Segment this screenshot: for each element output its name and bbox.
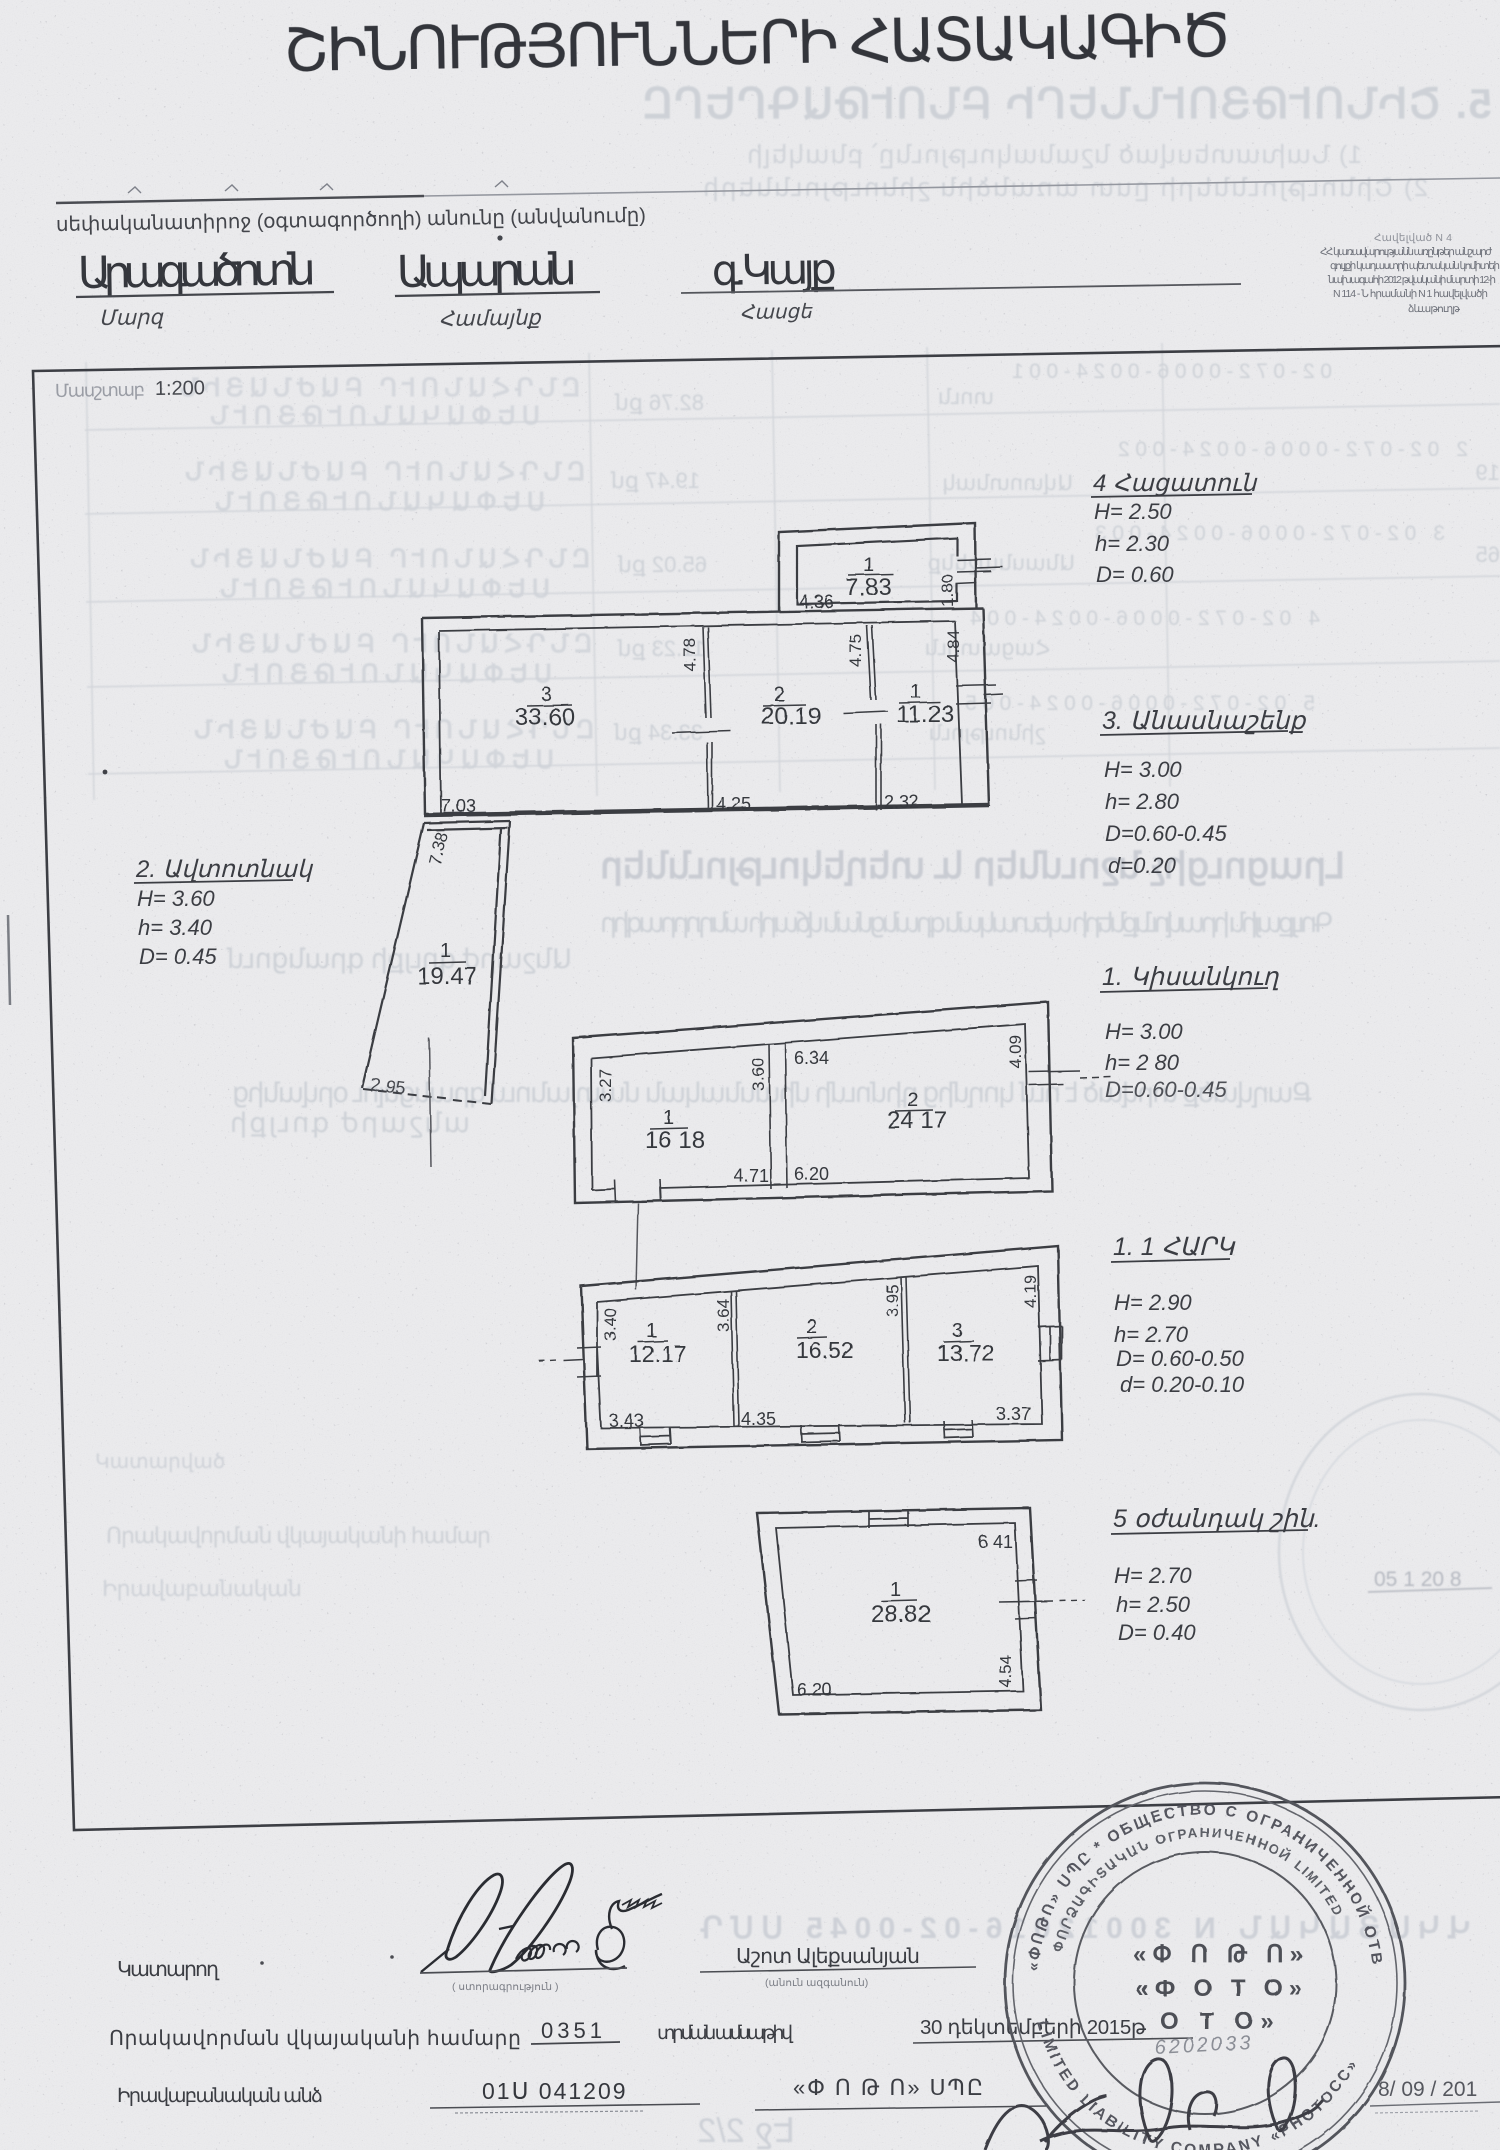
svg-text:3.27: 3.27 [596,1069,615,1102]
svg-text:4.09: 4.09 [1006,1035,1025,1068]
svg-text:1:200: 1:200 [155,377,205,400]
svg-text:ՍԵՓԱԿԱՆՈՒԹՅՈՒՆ: ՍԵՓԱԿԱՆՈՒԹՅՈՒՆ [222,660,552,688]
svg-text:ՍԵՓԱԿԱՆՈՒԹՅՈՒՆ: ՍԵՓԱԿԱՆՈՒԹՅՈՒՆ [224,746,554,774]
svg-text:«Փ Ո Թ Ո»: «Փ Ո Թ Ո» [1133,1941,1309,1968]
svg-text:28.82: 28.82 [871,1601,931,1628]
svg-text:ԸՆԴՀԱՆՈՒՐ ԲԱԺՆԱՅԻՆ: ԸՆԴՀԱՆՈՒՐ ԲԱԺՆԱՅԻՆ [192,630,592,658]
svg-text:1) Նախատեսված նշանակությունը՝: 1) Նախատեսված նշանակությունը՝ բնակելի [747,141,1362,169]
svg-text:1: 1 [910,681,921,703]
svg-text:12.17: 12.17 [629,1341,687,1367]
svg-text:d= 0.20-0.10: d= 0.20-0.10 [1120,1372,1245,1397]
svg-text:Արագածոտն: Արագածոտն [77,245,316,298]
svg-text:6 41: 6 41 [978,1532,1013,1552]
svg-text:3: 3 [952,1320,963,1342]
svg-text:30 դեկտեմբերի 2015թ: 30 դեկտեմբերի 2015թ [920,2016,1147,2039]
svg-text:2) Շինությունների ըստ առանձին: 2) Շինությունների ըստ առանձին շինություն… [703,174,1428,202]
svg-text:1: 1 [663,1107,674,1129]
svg-text:ԸՆԴՀԱՆՈՒՐ ԲԱԺՆԱՅԻՆ: ԸՆԴՀԱՆՈՒՐ ԲԱԺՆԱՅԻՆ [180,374,580,402]
svg-text:H= 3.60: H= 3.60 [137,886,215,911]
svg-text:h= 2 80: h= 2 80 [1105,1050,1180,1075]
svg-text:h= 3.40: h= 3.40 [138,915,213,940]
svg-text:11.23: 11.23 [896,701,954,728]
svg-text:65: 65 [1476,542,1500,567]
svg-text:4 02-072-0006-0024-004: 4 02-072-0006-0024-004 [970,607,1320,630]
svg-text:նախագահի 2012 թվականի մարտի 12: նախագահի 2012 թվականի մարտի 12-ի [1327,274,1496,286]
svg-text:Կատարված: Կատարված [95,1451,225,1473]
svg-text:4.78: 4.78 [680,638,699,671]
svg-text:5 օժանդակ շին.: 5 օժանդակ շին. [1113,1505,1321,1533]
svg-text:4.54: 4.54 [996,1655,1015,1688]
svg-text:D=0.60-0.45: D=0.60-0.45 [1105,1077,1227,1102]
svg-text:4.71: 4.71 [734,1166,769,1186]
svg-text:1: 1 [440,940,451,962]
svg-text:2.95: 2.95 [370,1074,407,1098]
svg-text:13.72: 13.72 [937,1340,995,1366]
svg-text:1. Կիսանկուղ: 1. Կիսանկուղ [1102,963,1280,991]
svg-text:3.95: 3.95 [883,1284,902,1317]
svg-text:H= 3.00: H= 3.00 [1105,1019,1183,1044]
svg-text:տրման ամսաթիվ: տրման ամսաթիվ [657,2023,794,2044]
svg-text:Անշարժ գույքի գրանցում: Անշարժ գույքի գրանցում [226,944,572,974]
svg-text:ԸՆԴՀԱՆՈՒՐ ԲԱԺՆԱՅԻՆ: ԸՆԴՀԱՆՈՒՐ ԲԱԺՆԱՅԻՆ [190,545,590,573]
svg-text:4 Հացատուն: 4 Հացատուն [1093,470,1258,497]
svg-text:2.32: 2.32 [884,792,919,812]
svg-text:2 02-072-0006-0024-002: 2 02-072-0006-0024-002 [1118,438,1468,461]
svg-text:05 1 20 8: 05 1 20 8 [1374,1568,1462,1591]
svg-text:7.03: 7.03 [441,796,476,816]
svg-text:1: 1 [863,554,874,576]
svg-text:H= 3.00: H= 3.00 [1104,757,1182,782]
svg-text:16 18: 16 18 [645,1127,705,1154]
svg-text:Հավելված N 4: Հավելված N 4 [1374,232,1452,244]
svg-text:Իրավաբանական անձ: Իրավաբանական անձ [117,2085,323,2107]
svg-text:Հասցե: Հասցե [740,301,813,324]
svg-text:3.37: 3.37 [996,1404,1031,1424]
svg-text:3.43: 3.43 [609,1411,644,1431]
svg-text:Գույքային իրավունքների պետական: Գույքային իրավունքների պետական գրանցման … [600,908,1333,938]
svg-text:19.47 քմ: 19.47 քմ [610,468,700,493]
svg-text:01Ս 041209: 01Ս 041209 [482,2078,628,2104]
svg-text:82.76 քմ: 82.76 քմ [614,390,704,415]
svg-text:«Ф О Т О»: «Ф О Т О» [1135,1975,1308,2002]
svg-text:Կատարող: Կատարող [117,1958,220,1981]
svg-text:20.19: 20.19 [761,703,821,730]
svg-text:4.75: 4.75 [846,634,865,667]
svg-text:8/ 09 / 201: 8/ 09 / 201 [1378,2078,1477,2101]
svg-text:Ապարան: Ապարան [396,245,577,297]
svg-text:1: 1 [646,1320,657,1342]
svg-text:1: 1 [890,1579,901,1601]
svg-text:h= 2.80: h= 2.80 [1105,789,1180,814]
svg-text:D= 0.60: D= 0.60 [1096,562,1174,587]
svg-text:1. 1 ՀԱՐԿ: 1. 1 ՀԱՐԿ [1113,1233,1236,1261]
svg-text:անշարժ գույքի: անշարժ գույքի [230,1108,470,1138]
svg-text:D= 0.60-0.50: D= 0.60-0.50 [1116,1346,1245,1371]
svg-text:Մարզ: Մարզ [99,306,165,330]
svg-text:ձևաթուղթ: ձևաթուղթ [1408,303,1461,315]
svg-text:0351: 0351 [541,2018,606,2043]
svg-text:4.84: 4.84 [944,630,963,663]
svg-text:H= 2.70: H= 2.70 [1114,1563,1192,1588]
svg-text:Որակավորման վկայականի համար: Որակավորման վկայականի համար [106,1523,491,1548]
svg-text:Մասշտաբ: Մասշտաբ [55,380,145,401]
svg-text:ՍԵՓԱԿԱՆՈՒԹՅՈՒՆ: ՍԵՓԱԿԱՆՈՒԹՅՈՒՆ [215,488,545,516]
svg-text:h= 2.70: h= 2.70 [1114,1322,1189,1347]
svg-text:ՍԵՓԱԿԱՆՈՒԹՅՈՒՆ: ՍԵՓԱԿԱՆՈՒԹՅՈՒՆ [220,575,550,603]
svg-text:H= 2.90: H= 2.90 [1114,1290,1192,1315]
svg-text:H= 2.50: H= 2.50 [1094,499,1172,524]
svg-text:19.47: 19.47 [417,963,477,990]
svg-text:d=0.20: d=0.20 [1108,853,1177,878]
svg-text:Ավտոտնակ: Ավտոտնակ [942,472,1073,495]
svg-text:Էջ 2/2: Էջ 2/2 [697,2112,795,2150]
svg-text:16.52: 16.52 [796,1337,854,1363]
svg-text:D= 0.45: D= 0.45 [139,944,217,969]
svg-text:7.83: 7.83 [845,574,892,601]
svg-text:Համայնք: Համայնք [439,306,542,331]
svg-text:6.20: 6.20 [797,1680,832,1700]
svg-text:(անուն ազգանուն): (անուն ազգանուն) [765,1977,868,1989]
svg-text:գ.Կայք: գ.Կայք [711,245,837,294]
svg-text:4.25: 4.25 [716,794,751,814]
svg-text:Լրացուցիչ նշումներ և տեղեկությ: Լրացուցիչ նշումներ և տեղեկություններ [600,845,1345,887]
svg-text:D= 0.40: D= 0.40 [1118,1620,1196,1645]
svg-text:6.20: 6.20 [794,1164,829,1184]
svg-text:ՀՀ կառավարությանն առընթեր անշա: ՀՀ կառավարությանն առընթեր անշարժ [1320,246,1493,258]
svg-text:Անասնաշենք: Անասնաշենք [928,552,1075,575]
svg-text:Իրավաբանական: Իրավաբանական [102,1576,302,1601]
svg-text:3: 3 [541,684,552,706]
svg-text:6.34: 6.34 [794,1048,829,1068]
svg-text:О Т О»: О Т О» [1160,2008,1281,2035]
svg-text:4.35: 4.35 [741,1409,776,1429]
svg-text:2: 2 [806,1316,817,1338]
svg-text:Աշոտ Ալեքսանյան: Աշոտ Ալեքսանյան [736,1945,920,1968]
svg-text:19: 19 [1476,460,1500,485]
svg-text:4.19: 4.19 [1021,1275,1040,1308]
svg-text:( ստորագրություն ): ( ստորագրություն ) [452,1981,559,1993]
svg-text:գույքի կադաստրի պետական կոմիտե: գույքի կադաստրի պետական կոմիտեի [1330,260,1500,272]
svg-text:3.64: 3.64 [714,1299,733,1332]
svg-text:h= 2.50: h= 2.50 [1116,1592,1191,1617]
svg-text:ԸՆԴՀԱՆՈՒՐ ԲԱԺՆԱՅԻՆ: ԸՆԴՀԱՆՈՒՐ ԲԱԺՆԱՅԻՆ [185,458,585,486]
svg-text:2. Ավտոտնակ: 2. Ավտոտնակ [135,856,314,883]
svg-text:33.60: 33.60 [515,704,575,731]
svg-text:3.60: 3.60 [749,1058,768,1091]
svg-text:ՍԵՓԱԿԱՆՈՒԹՅՈՒՆ: ՍԵՓԱԿԱՆՈՒԹՅՈՒՆ [210,402,540,430]
svg-text:N 114 - Ն հրամանի N 1 հավելված: N 114 - Ն հրամանի N 1 հավելվածի [1333,288,1488,300]
svg-text:3.40: 3.40 [601,1308,620,1341]
svg-text:4.36: 4.36 [799,592,834,612]
svg-text:h= 2.30: h= 2.30 [1095,531,1170,556]
svg-text:տուն: տուն [938,386,994,409]
svg-text:1.80: 1.80 [938,574,957,607]
svg-text:D=0.60-0.45: D=0.60-0.45 [1105,821,1227,846]
svg-text:65.02 քմ: 65.02 քմ [617,552,707,577]
svg-text:Որակավորման վկայականի համարը: Որակավորման վկայականի համարը [109,2027,521,2050]
